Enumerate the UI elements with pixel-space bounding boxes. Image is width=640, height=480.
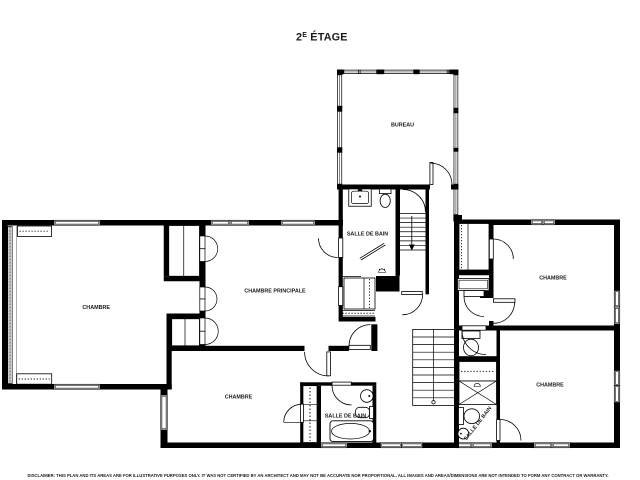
svg-text:SALLE DE BAIN: SALLE DE BAIN — [347, 231, 388, 237]
svg-text:CHAMBRE: CHAMBRE — [225, 394, 253, 400]
svg-text:CHAMBRE: CHAMBRE — [539, 276, 567, 282]
svg-text:CHAMBRE: CHAMBRE — [536, 382, 564, 388]
svg-text:CHAMBRE PRINCIPALE: CHAMBRE PRINCIPALE — [244, 289, 306, 295]
svg-text:SALLE DE BAIN: SALLE DE BAIN — [325, 414, 366, 420]
svg-text:CHAMBRE: CHAMBRE — [82, 305, 110, 311]
svg-text:DISCLAIMER: THIS PLAN AND ITS: DISCLAIMER: THIS PLAN AND ITS AREAS ARE … — [28, 473, 610, 479]
svg-text:BUREAU: BUREAU — [391, 123, 414, 129]
